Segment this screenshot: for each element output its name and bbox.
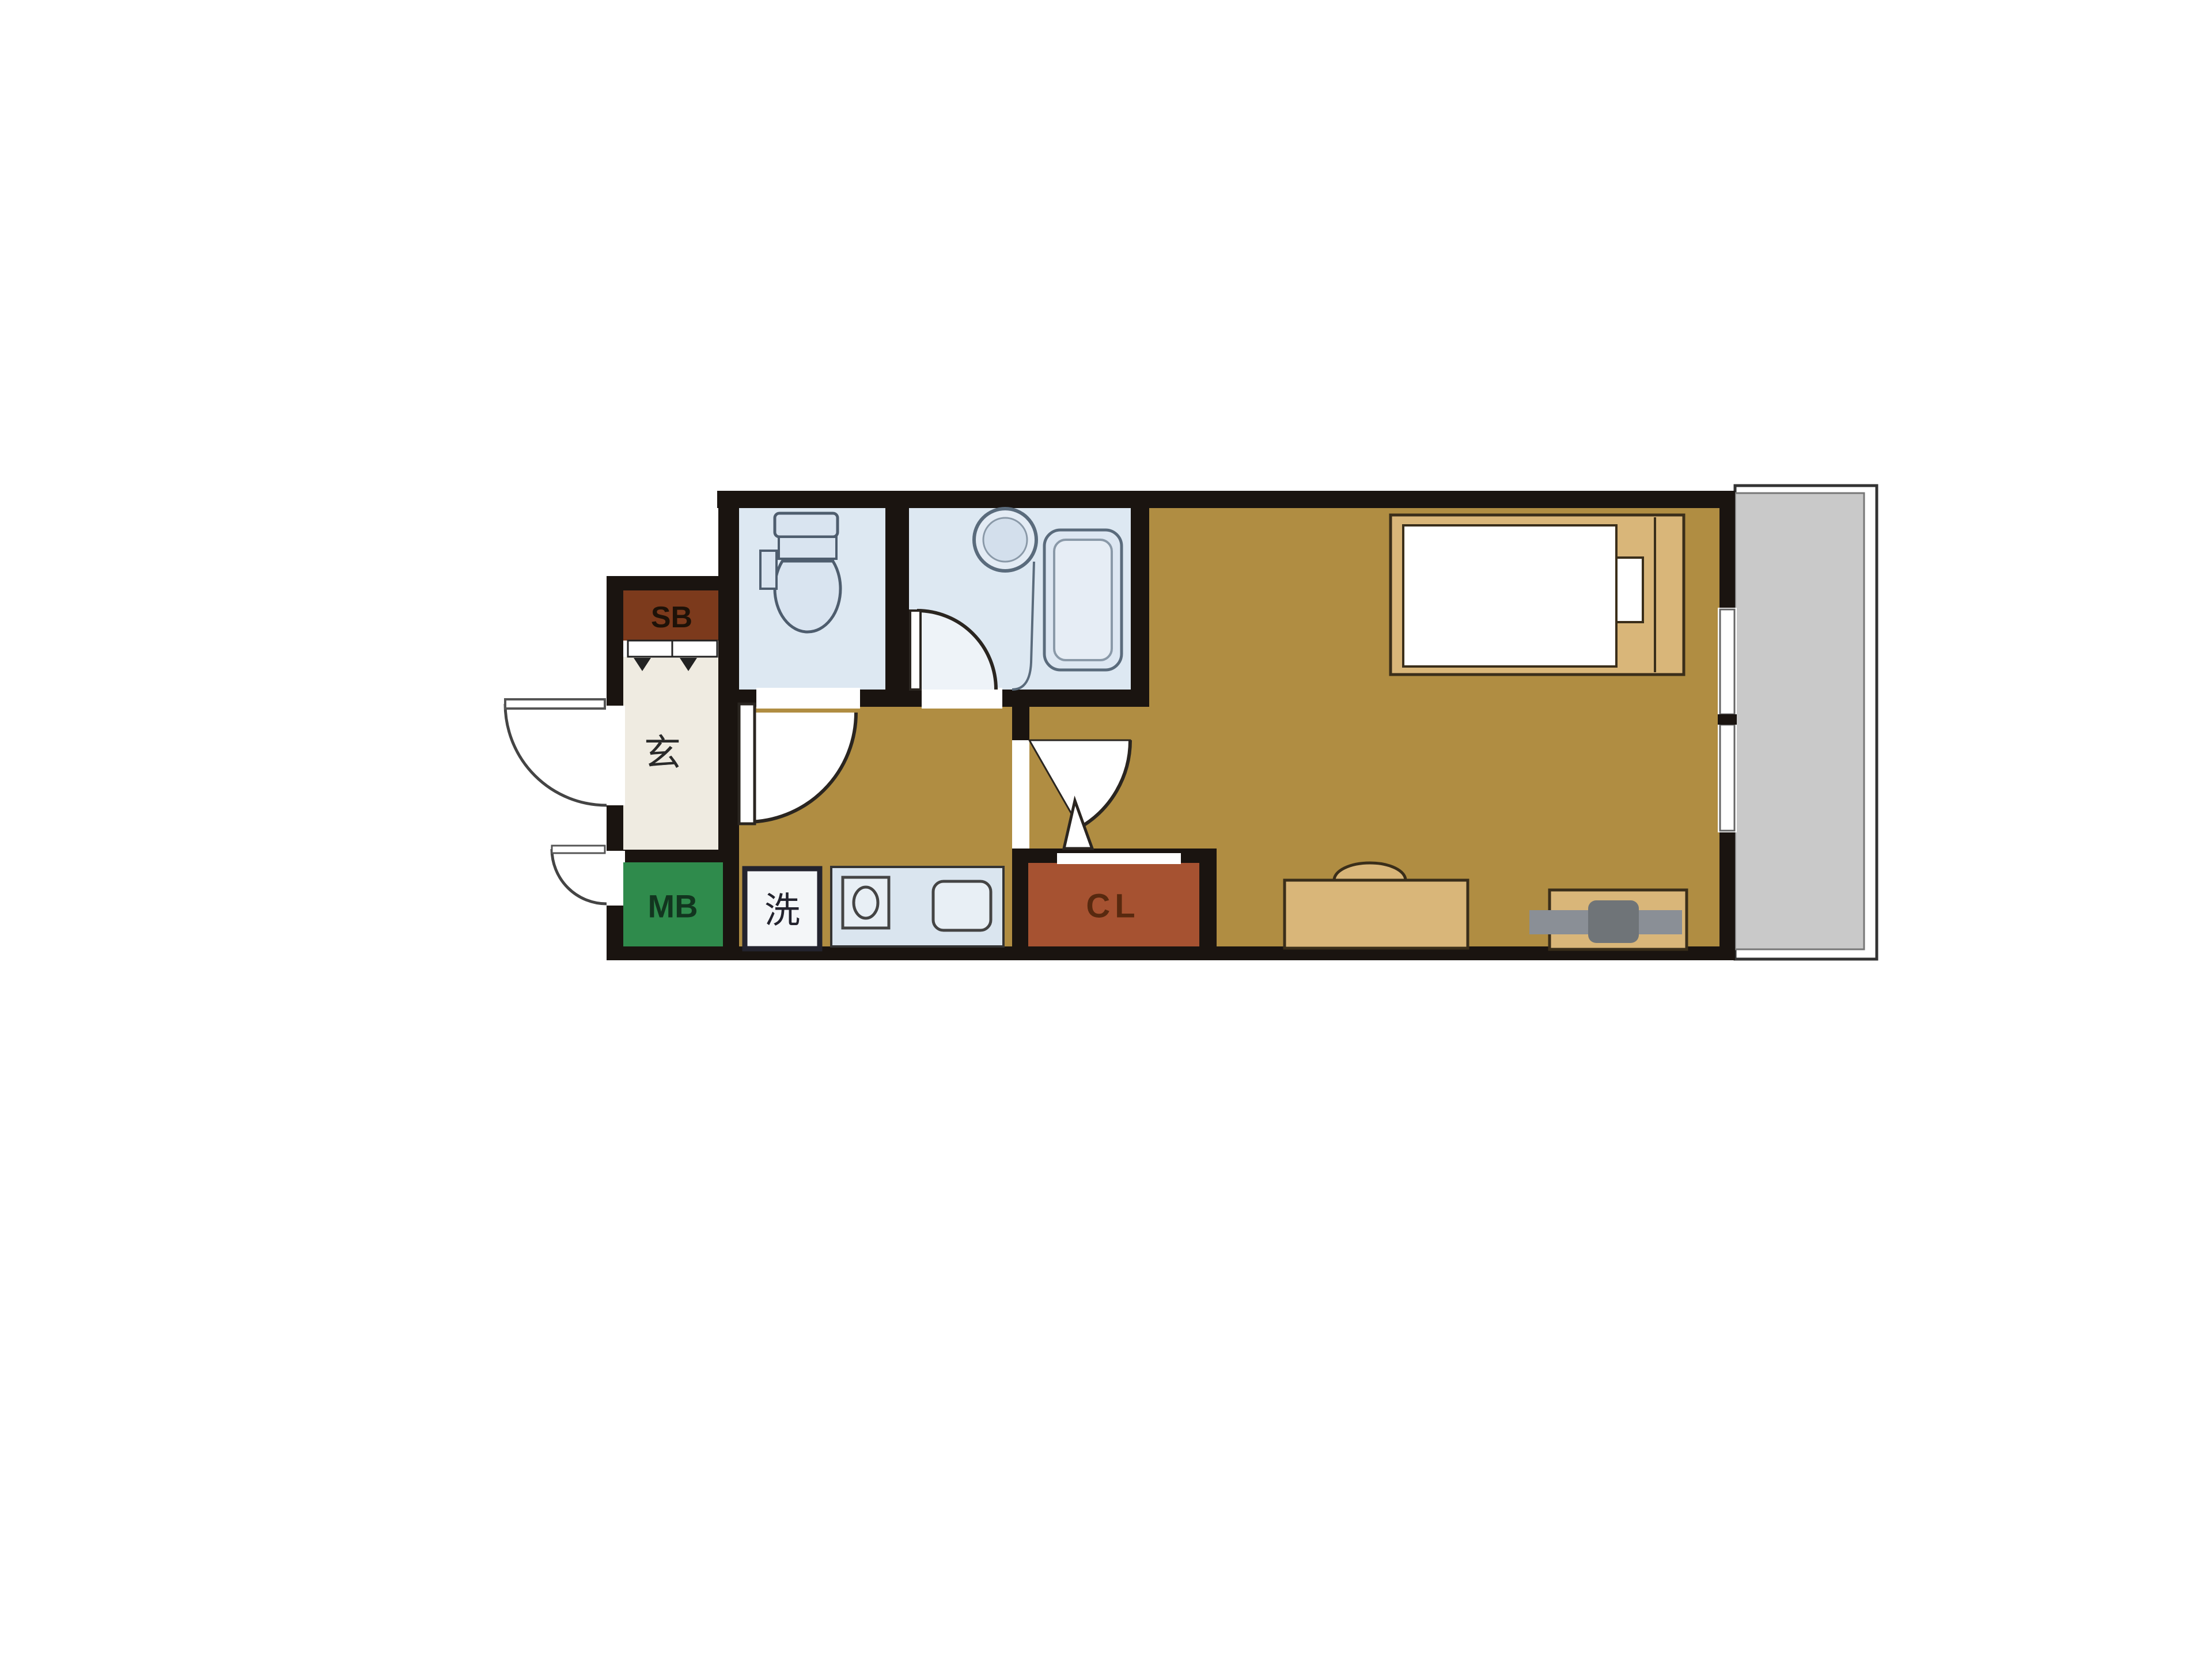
opening-mb-door (605, 851, 625, 906)
tv-center-icon (1588, 900, 1639, 943)
mb-door-arc (552, 849, 607, 904)
closet-label: CL (1086, 888, 1139, 925)
closet-door (1057, 853, 1181, 864)
bathtub-inner-icon (1054, 540, 1112, 660)
window-mullion (1718, 714, 1737, 725)
wall-toilet-bath-divider (885, 491, 909, 707)
toilet-seat-icon (779, 537, 836, 559)
bath-door-leaf (910, 611, 921, 690)
opening-main-door (1012, 740, 1029, 849)
opening-bath-door (922, 688, 1002, 709)
wall-top (717, 491, 1735, 508)
tv-stand (1529, 890, 1687, 949)
wall-above-main-door (1012, 690, 1029, 740)
bed-pillow (1616, 558, 1643, 622)
washer-label: 洗 (764, 891, 800, 931)
toilet-handle-icon (760, 551, 777, 589)
opening-toilet-door (756, 688, 860, 709)
floor-plan-page: SB 玄 MB 洗 CL (0, 0, 2212, 1659)
meter-box-label: MB (647, 888, 698, 925)
balcony-floor (1735, 493, 1864, 949)
shoe-box-label: SB (651, 601, 692, 634)
toilet-door-leaf (739, 704, 755, 824)
window-sliding (1718, 608, 1737, 832)
entrance-door-arc (505, 704, 607, 805)
entrance-label: 玄 (644, 732, 681, 774)
bed (1391, 515, 1684, 675)
stove-icon (843, 877, 889, 928)
kitchen-counter (831, 867, 1003, 946)
wall-bathroom-right (1131, 491, 1149, 707)
window-pane-top (1720, 609, 1734, 714)
toilet-tank-icon (775, 513, 838, 537)
mb-door-leaf (552, 846, 605, 853)
wall-entrance-mb-divider (623, 850, 723, 862)
entrance-door-leaf (505, 699, 605, 709)
wall-sb-top (607, 576, 720, 592)
bed-mattress (1403, 525, 1616, 666)
window-pane-bottom (1720, 725, 1734, 831)
closet: CL (1012, 849, 1217, 960)
table-top (1285, 880, 1468, 948)
kitchen-sink-icon (933, 881, 991, 930)
opening-entrance-door (605, 706, 625, 805)
floor-plan-canvas: SB 玄 MB 洗 CL (0, 0, 2212, 1659)
washbasin-inner-icon (983, 518, 1027, 562)
